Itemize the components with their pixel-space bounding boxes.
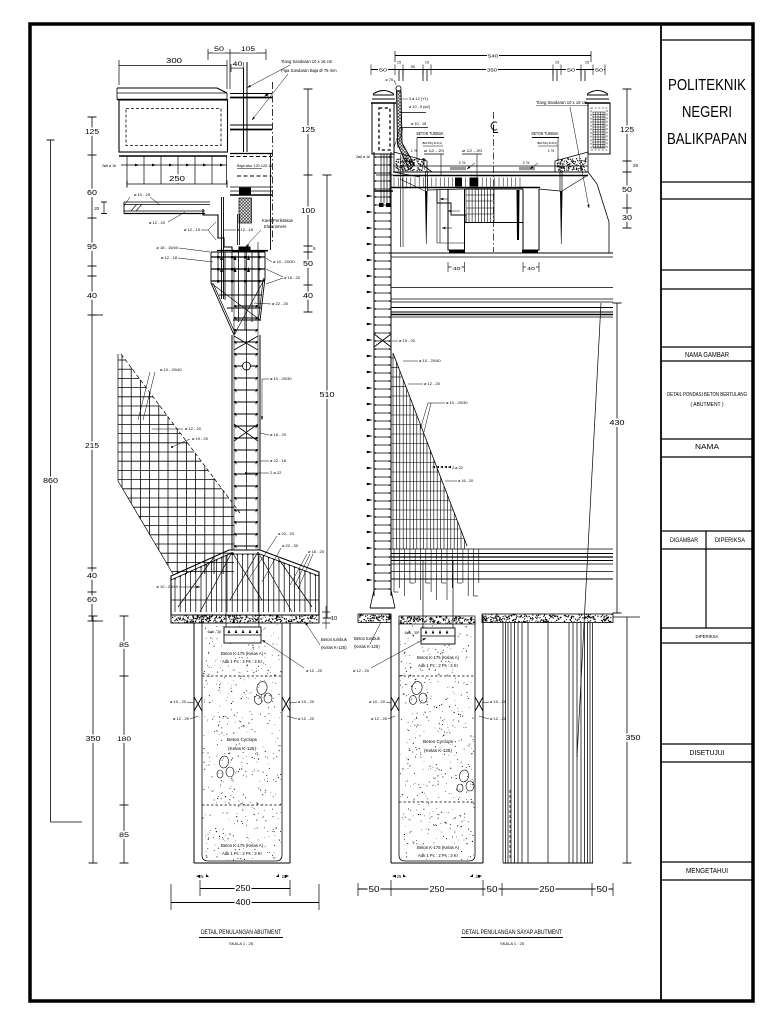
svg-text:25: 25 <box>281 874 287 879</box>
svg-text:Beton K-175 (Kelas A): Beton K-175 (Kelas A) <box>417 845 460 850</box>
svg-text:ø 12 - 20: ø 12 - 20 <box>185 426 202 431</box>
svg-text:NAMA: NAMA <box>695 444 719 451</box>
svg-text:180: 180 <box>117 736 131 743</box>
svg-text:DETAIL PENULANGAN SAYAP ABUTME: DETAIL PENULANGAN SAYAP ABUTMENT <box>462 929 562 936</box>
svg-text:(Kelas K-125): (Kelas K-125) <box>321 645 347 650</box>
svg-text:ø 12 - 20: ø 12 - 20 <box>149 220 166 225</box>
svg-text:ø 16 - 20: ø 16 - 20 <box>458 479 473 483</box>
svg-text:250: 250 <box>430 885 446 894</box>
svg-text:ø 22 - 18: ø 22 - 18 <box>270 458 287 463</box>
svg-text:ø 22 - 20: ø 22 - 20 <box>278 531 295 536</box>
svg-text:Elastromere: Elastromere <box>264 224 287 229</box>
svg-text:2ø6 ø 16: 2ø6 ø 16 <box>356 155 370 159</box>
svg-text:ø 12 - 20: ø 12 - 20 <box>353 668 370 673</box>
svg-text:(BED 50Kg 60.60 k): (BED 50Kg 60.60 k) <box>537 141 557 145</box>
svg-text:( ABUTMENT ): ( ABUTMENT ) <box>691 402 724 408</box>
svg-text:215: 215 <box>85 443 99 450</box>
svg-text:ø 12 - 20: ø 12 - 20 <box>306 668 323 673</box>
svg-text:85: 85 <box>119 832 130 839</box>
svg-text:10: 10 <box>425 61 429 65</box>
svg-text:50: 50 <box>595 68 604 73</box>
svg-text:50: 50 <box>369 885 381 894</box>
svg-text:ø 10 - 5 (ø2): ø 10 - 5 (ø2) <box>409 105 431 109</box>
svg-text:350: 350 <box>86 736 101 743</box>
svg-text:50: 50 <box>411 65 415 69</box>
svg-text:Beton tumbuk: Beton tumbuk <box>321 637 348 642</box>
svg-text:60: 60 <box>87 190 97 197</box>
svg-text:Baja siku 120.120.11: Baja siku 120.120.11 <box>237 164 272 168</box>
svg-text:125: 125 <box>85 129 99 136</box>
svg-text:85: 85 <box>119 642 130 649</box>
svg-text:Adk 1 Pc : 2 Ps : 3 Kr: Adk 1 Pc : 2 Ps : 3 Kr <box>222 851 263 856</box>
svg-text:Karet Perletakan: Karet Perletakan <box>262 218 294 223</box>
svg-text:ø 12 - 20: ø 12 - 20 <box>298 716 315 721</box>
svg-text:DETAIL PONDASI BETON BERTULANG: DETAIL PONDASI BETON BERTULANG <box>667 392 747 398</box>
svg-text:40: 40 <box>527 266 536 271</box>
svg-text:Pipa Sandaran Baja Ø 75 mm: Pipa Sandaran Baja Ø 75 mm <box>281 68 337 73</box>
svg-text:20: 20 <box>94 206 99 211</box>
svg-text:ø 16 - 20: ø 16 - 20 <box>284 275 301 280</box>
svg-text:ø 75: ø 75 <box>385 78 393 82</box>
svg-text:Beton K-175 (Kelas A): Beton K-175 (Kelas A) <box>221 843 264 848</box>
svg-text:1 %: 1 % <box>548 149 555 153</box>
svg-text:BETON TUMBUK: BETON TUMBUK <box>417 131 444 136</box>
svg-text:ø 16 - 20: ø 16 - 20 <box>270 432 287 437</box>
svg-text:DETAIL PENULANGAN ABUTMENT: DETAIL PENULANGAN ABUTMENT <box>201 929 281 936</box>
svg-text:6ø8 - 30: 6ø8 - 30 <box>208 630 221 634</box>
svg-text:510: 510 <box>320 392 335 399</box>
svg-text:2 %: 2 % <box>523 160 530 165</box>
svg-text:ø 10 - 20: ø 10 - 20 <box>298 699 315 704</box>
svg-text:25: 25 <box>397 874 402 879</box>
svg-text:15: 15 <box>397 61 401 65</box>
svg-text:50: 50 <box>214 47 225 53</box>
svg-text:ø 10 - 20/40: ø 10 - 20/40 <box>419 358 441 363</box>
svg-text:25: 25 <box>633 163 639 168</box>
svg-text:15: 15 <box>585 61 589 65</box>
svg-text:(BED 50Kg 60.60 k): (BED 50Kg 60.60 k) <box>422 141 442 145</box>
svg-text:ø 12 - 15: ø 12 - 15 <box>184 227 201 232</box>
svg-text:50: 50 <box>597 885 609 894</box>
svg-text:ø 12 - 20: ø 12 - 20 <box>424 381 441 386</box>
svg-text:60: 60 <box>87 597 97 604</box>
svg-text:Beton K-175 (Kelas A): Beton K-175 (Kelas A) <box>221 651 264 656</box>
svg-text:3 ø 12 (Y1): 3 ø 12 (Y1) <box>409 97 429 101</box>
svg-text:2ø6 ø 16: 2ø6 ø 16 <box>102 164 116 168</box>
svg-text:NAMA GAMBAR: NAMA GAMBAR <box>685 352 729 359</box>
svg-text:ø 10 - 20/30: ø 10 - 20/30 <box>446 400 468 405</box>
svg-text:SKALA 1 : 25: SKALA 1 : 25 <box>500 941 525 946</box>
svg-text:430: 430 <box>610 420 625 427</box>
svg-text:250: 250 <box>540 885 556 894</box>
svg-text:ø 10 - 20/40: ø 10 - 20/40 <box>156 584 178 589</box>
svg-text:ø 22 - 30: ø 22 - 30 <box>282 543 299 548</box>
svg-text:250: 250 <box>236 884 252 893</box>
svg-text:250: 250 <box>169 174 185 183</box>
svg-text:ø 10 - 18: ø 10 - 18 <box>411 122 426 126</box>
svg-text:ø 12 - 20: ø 12 - 20 <box>371 716 388 721</box>
svg-text:50: 50 <box>303 261 313 268</box>
svg-text:DIPERIKSA: DIPERIKSA <box>696 634 720 640</box>
svg-text:50: 50 <box>622 187 632 194</box>
svg-text:ø 10 - 20: ø 10 - 20 <box>490 699 507 704</box>
svg-text:DIGAMBAR: DIGAMBAR <box>670 538 699 544</box>
svg-text:Beton K-175 (Kelas A): Beton K-175 (Kelas A) <box>417 655 460 660</box>
svg-text:ø 12 - 20: ø 12 - 20 <box>424 148 445 153</box>
svg-text:ø 12 - 18: ø 12 - 18 <box>237 227 254 232</box>
svg-text:Tiang Sandaran 10 x 16 cm: Tiang Sandaran 10 x 16 cm <box>281 59 333 64</box>
svg-text:300: 300 <box>166 56 182 65</box>
svg-text:10: 10 <box>331 616 337 622</box>
svg-text:(Kelas K-125): (Kelas K-125) <box>424 748 453 753</box>
svg-text:30: 30 <box>622 215 632 222</box>
svg-text:ø 18 - 15/40: ø 18 - 15/40 <box>156 245 178 250</box>
svg-text:540: 540 <box>488 54 499 59</box>
svg-text:ø 10 - 20/30: ø 10 - 20/30 <box>270 376 292 381</box>
svg-text:ø 12 - 20: ø 12 - 20 <box>490 716 507 721</box>
svg-text:2 ø 22: 2 ø 22 <box>270 470 282 475</box>
svg-text:350: 350 <box>626 735 641 742</box>
svg-text:25: 25 <box>198 874 204 879</box>
svg-text:Beton tumbuk: Beton tumbuk <box>354 636 381 641</box>
svg-text:ø 22 - 20: ø 22 - 20 <box>272 301 289 306</box>
svg-text:ø 12 - 20: ø 12 - 20 <box>462 148 483 153</box>
svg-text:ø 19 - 20: ø 19 - 20 <box>192 436 209 441</box>
svg-text:DIPERIKSA: DIPERIKSA <box>715 538 745 544</box>
svg-text:(Kelas K-125): (Kelas K-125) <box>228 746 257 751</box>
svg-text:1 %: 1 % <box>411 149 418 153</box>
svg-text:ø 12 - 20: ø 12 - 20 <box>173 716 190 721</box>
svg-text:Adk 1 Pc : 2 Ps : 3 Kr: Adk 1 Pc : 2 Ps : 3 Kr <box>418 663 459 668</box>
svg-text:Beton Cyclops: Beton Cyclops <box>227 737 258 742</box>
svg-text:40: 40 <box>87 573 97 580</box>
svg-text:Beton Cyclops: Beton Cyclops <box>423 739 454 744</box>
svg-text:40: 40 <box>303 293 313 300</box>
svg-text:2 %: 2 % <box>459 160 466 165</box>
svg-text:2 ø 22: 2 ø 22 <box>452 466 463 470</box>
svg-text:DISETUJUI: DISETUJUI <box>690 750 725 757</box>
svg-text:ø 10 - 20/30: ø 10 - 20/30 <box>273 259 295 264</box>
svg-text:ø 10 - 20: ø 10 - 20 <box>369 699 386 704</box>
svg-text:125: 125 <box>301 127 315 134</box>
svg-text:BETON TUMBUK: BETON TUMBUK <box>532 131 559 136</box>
svg-text:ø 16 - 20: ø 16 - 20 <box>308 549 325 554</box>
svg-text:40: 40 <box>453 266 462 271</box>
svg-text:40: 40 <box>233 62 244 68</box>
svg-text:10: 10 <box>555 61 559 65</box>
svg-text:50: 50 <box>379 68 388 73</box>
svg-text:350: 350 <box>487 68 498 73</box>
svg-text:ø 10 - 25: ø 10 - 25 <box>134 192 151 197</box>
svg-text:ø 19 - 20: ø 19 - 20 <box>399 338 416 343</box>
svg-text:105: 105 <box>241 47 256 53</box>
svg-text:(Kelas K-125): (Kelas K-125) <box>354 644 380 649</box>
svg-text:40: 40 <box>87 293 97 300</box>
svg-text:NEGERI: NEGERI <box>682 104 732 121</box>
svg-text:100: 100 <box>301 208 315 215</box>
svg-text:Adk 1 Pc : 2 Ps : 3 Kr: Adk 1 Pc : 2 Ps : 3 Kr <box>222 659 263 664</box>
svg-text:ø 10 - 20/40: ø 10 - 20/40 <box>160 367 182 372</box>
svg-text:Tiang Sandaran 10 x 16 cm: Tiang Sandaran 10 x 16 cm <box>536 100 588 105</box>
svg-text:95: 95 <box>87 244 97 251</box>
svg-text:50: 50 <box>567 68 576 73</box>
svg-text:6ø8 - 30: 6ø8 - 30 <box>405 631 418 635</box>
svg-text:BALIKPAPAN: BALIKPAPAN <box>667 131 747 148</box>
svg-text:50: 50 <box>487 885 499 894</box>
svg-text:860: 860 <box>43 478 58 485</box>
svg-text:125: 125 <box>620 127 634 134</box>
svg-text:SKALA 1 : 25: SKALA 1 : 25 <box>229 941 254 946</box>
svg-text:ø 12 - 18: ø 12 - 18 <box>161 255 178 260</box>
svg-text:ø 10 - 20: ø 10 - 20 <box>170 699 187 704</box>
svg-text:Adk 1 Pc : 2 Ps : 3 Kr: Adk 1 Pc : 2 Ps : 3 Kr <box>418 853 459 858</box>
svg-text:400: 400 <box>236 898 252 907</box>
svg-text:MENGETAHUI: MENGETAHUI <box>686 868 728 875</box>
svg-text:POLITEKNIK: POLITEKNIK <box>668 77 747 94</box>
